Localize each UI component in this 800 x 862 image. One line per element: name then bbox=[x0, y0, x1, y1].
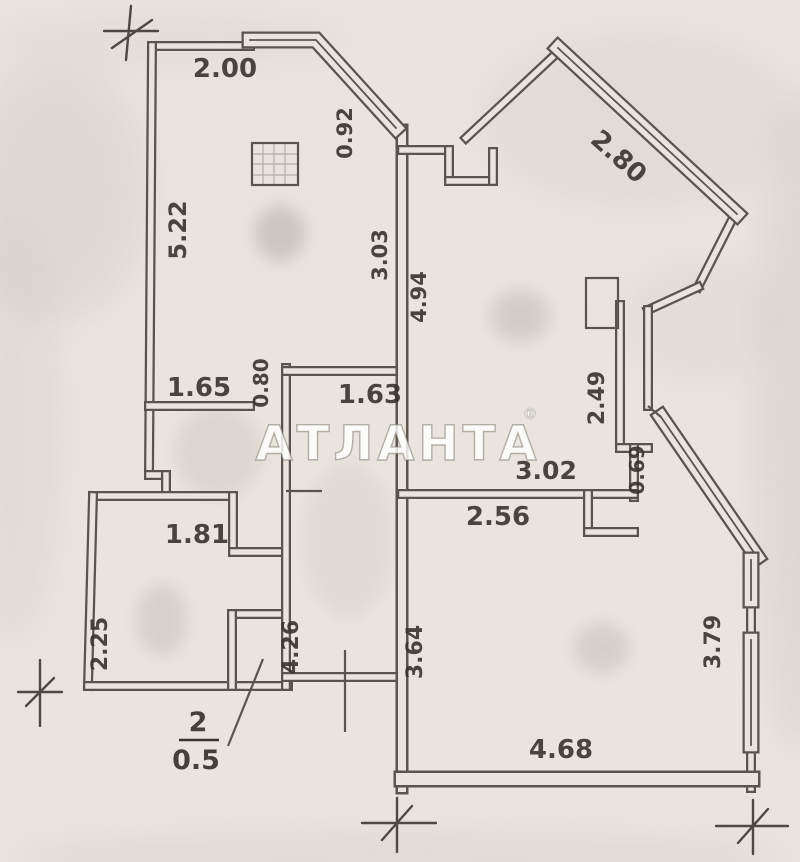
dimension-label: 0.92 bbox=[333, 107, 357, 159]
duct-column bbox=[586, 278, 618, 328]
floor-plan-canvas: 2 0.5 2.000.922.805.223.034.941.650.801.… bbox=[0, 0, 800, 862]
dimension-label: 0.80 bbox=[249, 358, 273, 407]
dimension-label: 3.64 bbox=[403, 625, 428, 679]
dimension-label: 5.22 bbox=[164, 200, 192, 259]
dimension-label: 2.49 bbox=[585, 371, 610, 425]
dimension-label: 4.26 bbox=[279, 620, 304, 674]
dimension-label: 2.00 bbox=[193, 54, 257, 84]
room-number: 2 bbox=[189, 707, 208, 738]
dimension-label: 3.03 bbox=[368, 229, 392, 281]
watermark-text: АТЛАНТА bbox=[256, 416, 541, 472]
dimension-label: 1.81 bbox=[165, 520, 229, 550]
vent-shaft bbox=[252, 143, 298, 185]
watermark: АТЛАНТА ® bbox=[256, 405, 541, 472]
dimension-label: 4.94 bbox=[407, 271, 431, 323]
dimension-label: 0.69 bbox=[625, 445, 649, 494]
room-area-value: 0.5 bbox=[172, 745, 220, 776]
dimension-label: 3.79 bbox=[701, 615, 726, 669]
dimension-label: 2.56 bbox=[466, 502, 530, 532]
registered-trademark-icon: ® bbox=[523, 405, 538, 423]
room-area-label: 2 0.5 bbox=[172, 659, 263, 776]
dimension-label: 4.68 bbox=[529, 735, 593, 765]
dimension-label: 2.25 bbox=[88, 617, 113, 671]
dimension-label: 1.63 bbox=[338, 380, 402, 410]
scanned-floor-plan: 2 0.5 2.000.922.805.223.034.941.650.801.… bbox=[0, 0, 800, 862]
dimension-label: 1.65 bbox=[167, 373, 231, 403]
